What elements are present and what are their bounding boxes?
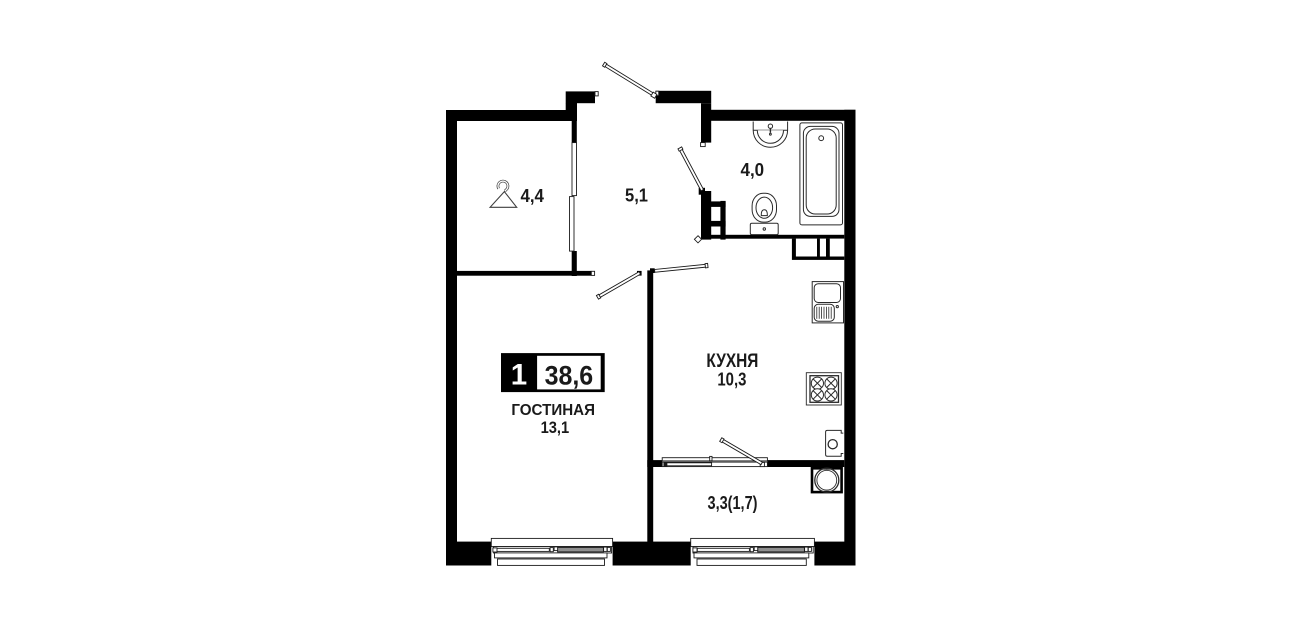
- svg-text:3,3(1,7): 3,3(1,7): [708, 493, 758, 513]
- svg-text:4,0: 4,0: [741, 160, 765, 180]
- svg-text:ГОСТИНАЯ: ГОСТИНАЯ: [511, 402, 595, 419]
- svg-text:1: 1: [511, 359, 527, 392]
- svg-text:38,6: 38,6: [545, 361, 594, 391]
- svg-text:10,3: 10,3: [717, 369, 746, 390]
- svg-text:4,4: 4,4: [520, 186, 544, 206]
- svg-text:5,1: 5,1: [625, 186, 648, 206]
- svg-text:13,1: 13,1: [541, 419, 570, 437]
